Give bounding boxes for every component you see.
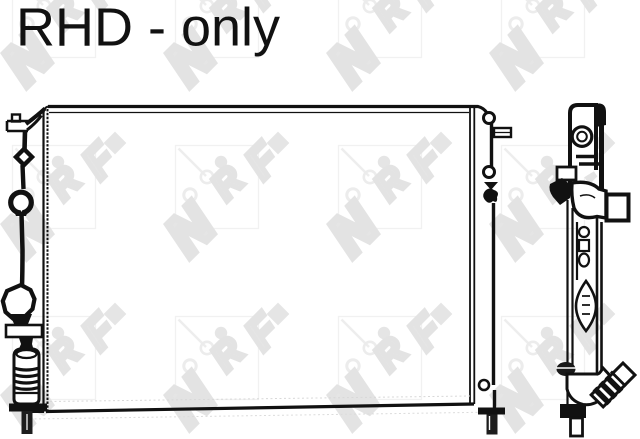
svg-text:RHD - only: RHD - only: [16, 0, 280, 58]
